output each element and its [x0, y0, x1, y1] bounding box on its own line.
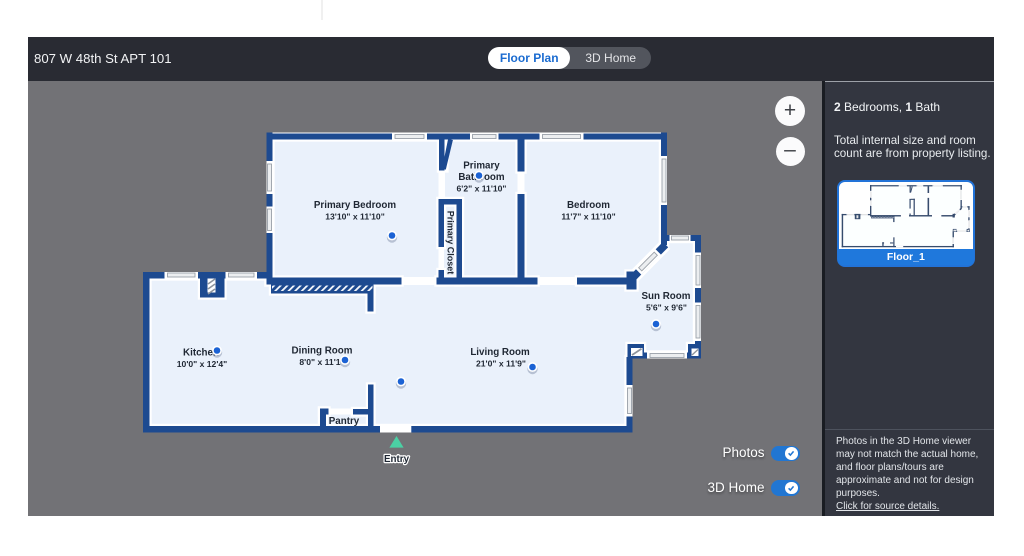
svg-text:8'0" x 11'1": 8'0" x 11'1" — [299, 357, 344, 367]
svg-text:Living Room: Living Room — [470, 347, 530, 358]
svg-text:10'0" x 12'4": 10'0" x 12'4" — [177, 359, 227, 369]
svg-text:21'0" x 11'9": 21'0" x 11'9" — [476, 359, 526, 369]
svg-text:11'7" x 11'10": 11'7" x 11'10" — [561, 212, 615, 222]
svg-text:13'10" x 11'10": 13'10" x 11'10" — [325, 212, 385, 222]
svg-text:Primary Bedroom: Primary Bedroom — [314, 200, 397, 211]
svg-text:Primary Closet: Primary Closet — [445, 211, 455, 275]
svg-text:Bedroom: Bedroom — [567, 200, 610, 211]
svg-text:5'6" x 9'6": 5'6" x 9'6" — [646, 303, 687, 313]
svg-text:Dining Room: Dining Room — [292, 346, 353, 357]
svg-text:Sun Room: Sun Room — [642, 291, 691, 302]
svg-text:Entry: Entry — [384, 454, 410, 465]
svg-text:Pantry: Pantry — [329, 416, 360, 427]
svg-text:6'2" x 11'10": 6'2" x 11'10" — [457, 184, 507, 194]
svg-text:Primary: Primary — [463, 161, 500, 172]
